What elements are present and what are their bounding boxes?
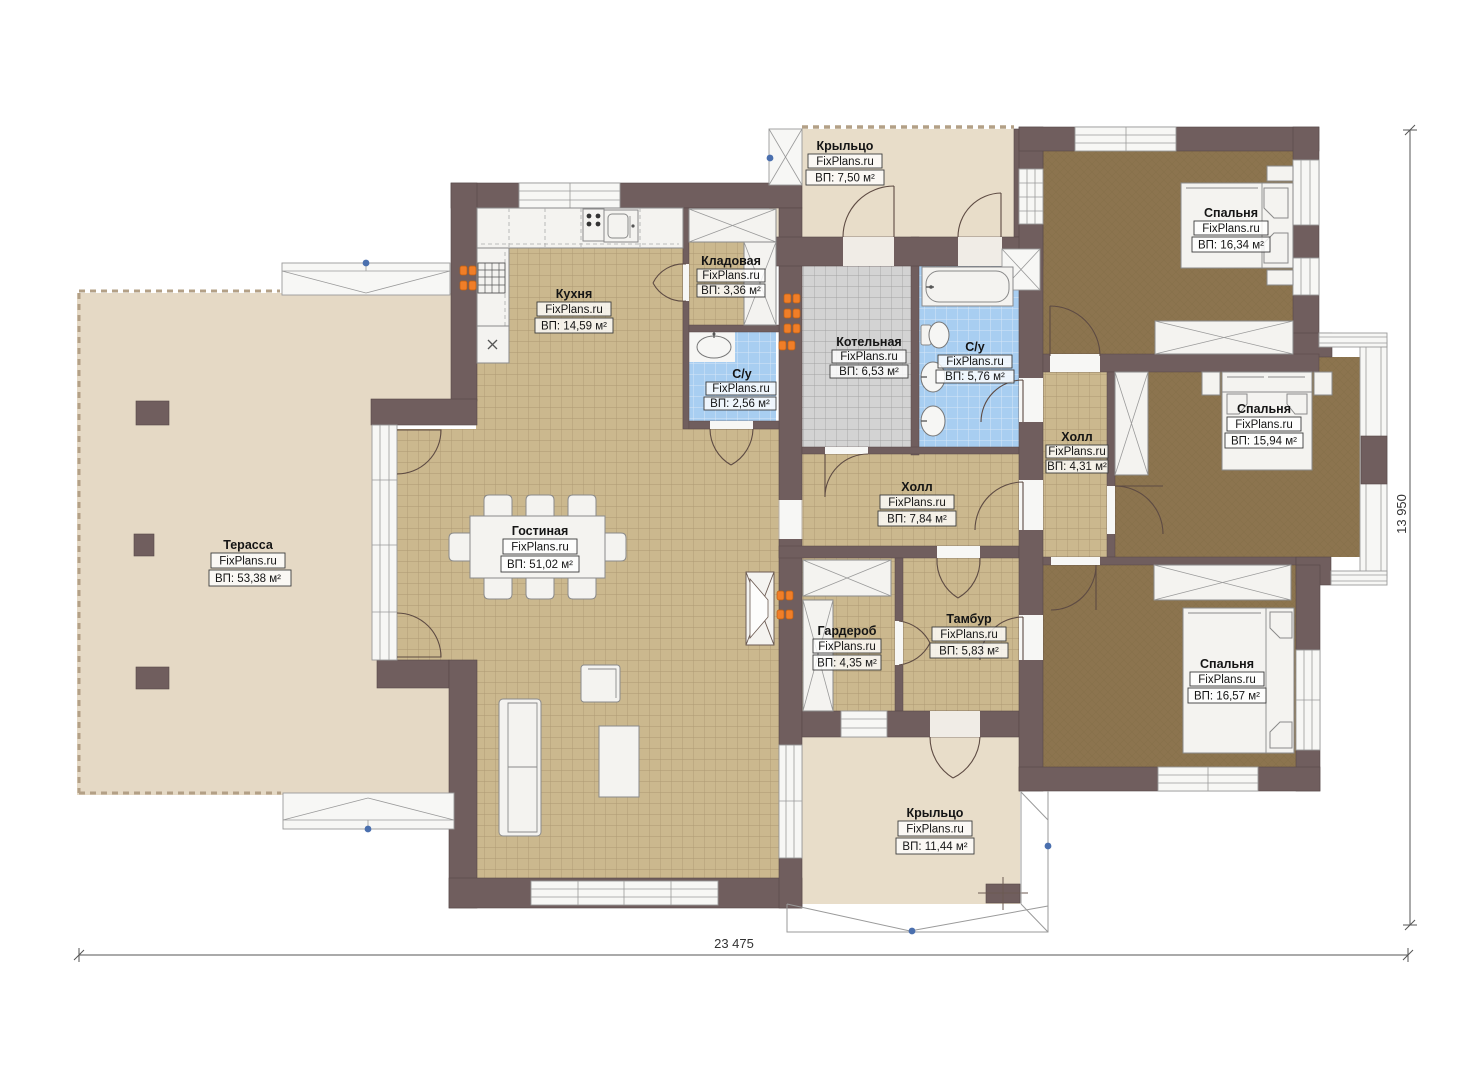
svg-text:Терасса: Терасса — [223, 538, 274, 552]
svg-text:FixPlans.ru: FixPlans.ru — [818, 641, 876, 653]
svg-text:Холл: Холл — [901, 480, 932, 494]
svg-text:FixPlans.ru: FixPlans.ru — [511, 542, 569, 554]
svg-text:Спальня: Спальня — [1204, 206, 1258, 220]
svg-text:Спальня: Спальня — [1237, 402, 1291, 416]
svg-text:FixPlans.ru: FixPlans.ru — [940, 629, 998, 641]
svg-text:ВП: 5,83 м²: ВП: 5,83 м² — [939, 646, 999, 658]
svg-text:ВП: 5,76 м²: ВП: 5,76 м² — [945, 371, 1005, 383]
svg-text:Крыльцо: Крыльцо — [817, 139, 874, 153]
svg-text:Спальня: Спальня — [1200, 657, 1254, 671]
svg-text:FixPlans.ru: FixPlans.ru — [840, 351, 898, 363]
svg-text:ВП: 2,56 м²: ВП: 2,56 м² — [710, 398, 770, 410]
svg-text:С/у: С/у — [965, 340, 985, 354]
svg-text:Котельная: Котельная — [836, 335, 901, 349]
svg-text:FixPlans.ru: FixPlans.ru — [946, 356, 1004, 368]
svg-text:FixPlans.ru: FixPlans.ru — [1198, 674, 1256, 686]
svg-text:ВП: 16,34 м²: ВП: 16,34 м² — [1198, 240, 1264, 252]
svg-text:FixPlans.ru: FixPlans.ru — [545, 304, 603, 316]
svg-text:FixPlans.ru: FixPlans.ru — [702, 270, 760, 282]
svg-text:ВП: 3,36 м²: ВП: 3,36 м² — [701, 285, 761, 297]
svg-text:ВП: 16,57 м²: ВП: 16,57 м² — [1194, 691, 1260, 703]
svg-text:FixPlans.ru: FixPlans.ru — [1048, 446, 1106, 458]
svg-text:Кухня: Кухня — [556, 287, 593, 301]
svg-text:Гостиная: Гостиная — [512, 524, 569, 538]
svg-text:ВП: 51,02 м²: ВП: 51,02 м² — [507, 559, 573, 571]
svg-text:23 475: 23 475 — [714, 936, 754, 951]
svg-text:С/у: С/у — [732, 367, 752, 381]
svg-text:FixPlans.ru: FixPlans.ru — [1202, 223, 1260, 235]
svg-text:ВП: 4,31 м²: ВП: 4,31 м² — [1047, 461, 1107, 473]
svg-text:ВП: 14,59 м²: ВП: 14,59 м² — [541, 321, 607, 333]
svg-text:ВП: 7,84 м²: ВП: 7,84 м² — [887, 514, 947, 526]
svg-text:13 950: 13 950 — [1394, 494, 1409, 534]
svg-text:FixPlans.ru: FixPlans.ru — [906, 824, 964, 836]
svg-text:Крыльцо: Крыльцо — [907, 806, 964, 820]
svg-text:ВП: 15,94 м²: ВП: 15,94 м² — [1231, 436, 1297, 448]
svg-text:FixPlans.ru: FixPlans.ru — [816, 156, 874, 168]
svg-text:ВП: 7,50 м²: ВП: 7,50 м² — [815, 173, 875, 185]
svg-text:FixPlans.ru: FixPlans.ru — [888, 497, 946, 509]
svg-text:Гардероб: Гардероб — [817, 624, 876, 638]
svg-text:ВП: 53,38 м²: ВП: 53,38 м² — [215, 573, 281, 585]
svg-text:ВП: 11,44 м²: ВП: 11,44 м² — [902, 841, 967, 853]
svg-text:Тамбур: Тамбур — [946, 612, 992, 626]
svg-text:FixPlans.ru: FixPlans.ru — [219, 556, 277, 568]
svg-text:Холл: Холл — [1061, 430, 1092, 444]
svg-text:ВП: 6,53 м²: ВП: 6,53 м² — [839, 366, 899, 378]
svg-text:FixPlans.ru: FixPlans.ru — [1235, 419, 1293, 431]
svg-text:ВП: 4,35 м²: ВП: 4,35 м² — [817, 658, 877, 670]
svg-text:FixPlans.ru: FixPlans.ru — [712, 383, 770, 395]
svg-text:Кладовая: Кладовая — [701, 254, 761, 268]
